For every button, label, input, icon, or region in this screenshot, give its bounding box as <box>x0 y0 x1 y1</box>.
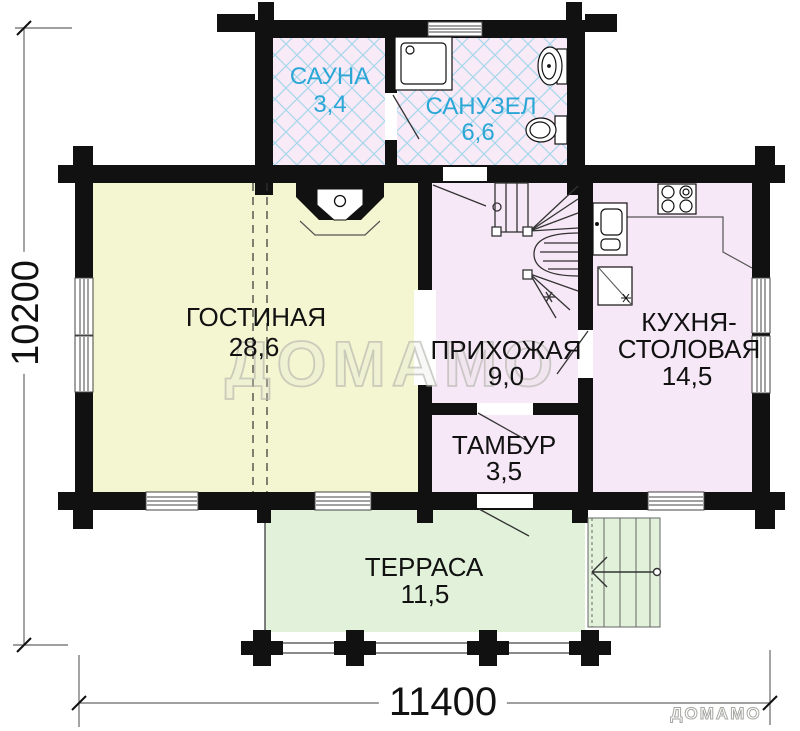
window-bottom-kitchen <box>648 492 704 510</box>
window-left-1 <box>75 278 93 335</box>
room-label-bathroom-area: 6,6 <box>461 121 494 145</box>
kitchen-sink-icon <box>593 203 627 255</box>
door-opening-bathroom <box>443 167 487 181</box>
terrace-steps <box>588 518 661 627</box>
room-label-kitchen-name-line1: КУХНЯ- <box>641 309 737 335</box>
door-opening-vestibule-bottom <box>477 494 533 508</box>
window-left-2 <box>75 336 93 392</box>
room-label-kitchen-name-line2: СТОЛОВАЯ <box>618 336 760 362</box>
dimension-width-label: 11400 <box>379 682 507 722</box>
shower-icon <box>395 37 452 90</box>
room-label-terrace-area: 11,5 <box>401 581 450 607</box>
room-label-terrace-name: ТЕРРАСА <box>365 554 484 580</box>
room-label-living-area: 28,6 <box>229 334 280 360</box>
door-opening-vestibule-top <box>477 403 533 415</box>
bathroom-sink-icon <box>538 47 567 85</box>
floor-plan-page: ДОМАМО ДОМАМО САУНА 3,4 САНУЗЕЛ 6,6 ГОСТ… <box>0 0 800 731</box>
kitchen-cabinet-icon <box>598 267 632 305</box>
window-bathroom-top <box>428 22 482 36</box>
door-opening-sauna <box>385 93 397 140</box>
watermark-small: ДОМАМО <box>670 704 761 724</box>
room-label-bathroom-name: САНУЗЕЛ <box>425 95 536 119</box>
room-label-sauna-name: САУНА <box>290 65 370 89</box>
room-label-hallway-area: 9,0 <box>488 363 524 389</box>
room-label-hallway-name: ПРИХОЖАЯ <box>431 337 582 363</box>
toilet-icon <box>526 116 567 144</box>
room-label-kitchen-area: 14,5 <box>662 363 713 389</box>
room-label-living-name: ГОСТИНАЯ <box>186 304 326 330</box>
window-bottom-2 <box>315 492 371 510</box>
room-label-sauna-area: 3,4 <box>313 93 346 117</box>
window-right-1 <box>752 278 770 333</box>
window-bottom-1 <box>146 492 198 510</box>
room-label-vestibule-area: 3,5 <box>486 458 522 484</box>
room-label-vestibule-name: ТАМБУР <box>452 432 556 458</box>
stove-icon <box>658 184 696 214</box>
dimension-depth-label: 10200 <box>7 252 45 374</box>
